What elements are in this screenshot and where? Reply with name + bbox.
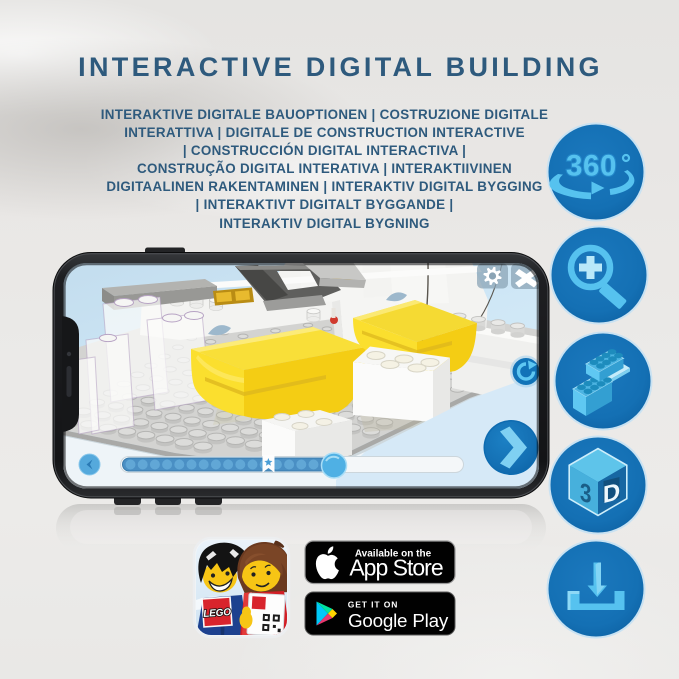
svg-text:360: 360 (566, 150, 617, 183)
svg-text:3: 3 (580, 478, 592, 510)
svg-text:LEGO: LEGO (203, 607, 232, 620)
svg-text:GET IT ON: GET IT ON (348, 600, 399, 610)
svg-text:App Store: App Store (349, 555, 442, 581)
svg-text:Google Play: Google Play (348, 610, 449, 631)
svg-text:D: D (603, 478, 620, 509)
